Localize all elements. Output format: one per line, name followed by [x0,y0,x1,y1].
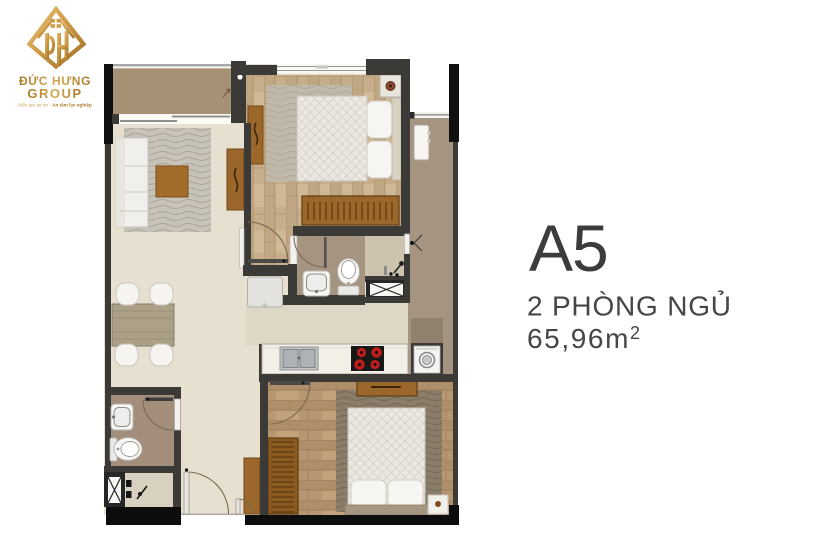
svg-text:A5: A5 [529,211,608,285]
svg-text:2 PHÒNG NGỦ: 2 PHÒNG NGỦ [527,290,732,322]
svg-text:GROUP: GROUP [27,86,82,101]
svg-text:Kiến tạo an cư - An tâm lạc ng: Kiến tạo an cư - An tâm lạc nghiệp [18,103,92,108]
svg-text:65,96m2: 65,96m2 [527,323,642,354]
